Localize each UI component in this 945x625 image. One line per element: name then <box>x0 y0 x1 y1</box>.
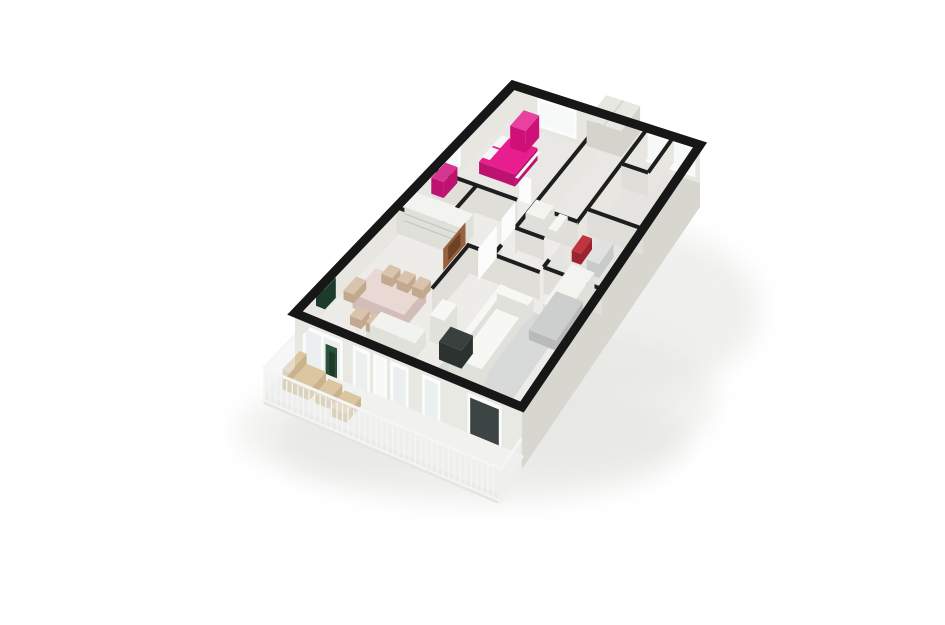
floorplan-3d-render <box>0 0 945 625</box>
floorplan-canvas <box>0 0 945 625</box>
